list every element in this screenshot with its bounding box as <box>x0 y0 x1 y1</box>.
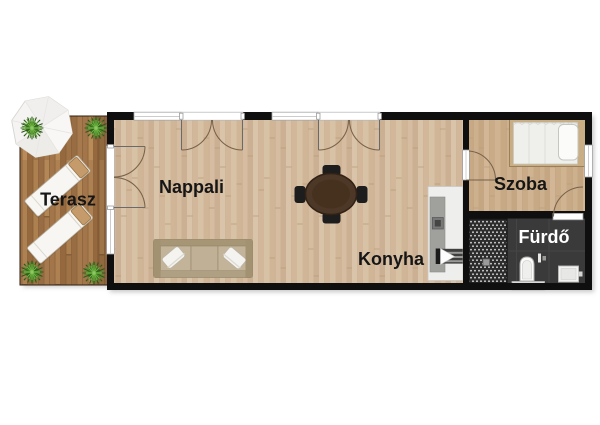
svg-text:Nappali: Nappali <box>159 177 224 197</box>
svg-text:Terasz: Terasz <box>40 190 96 210</box>
svg-text:Konyha: Konyha <box>358 249 425 269</box>
svg-text:Szoba: Szoba <box>494 174 548 194</box>
svg-text:Fürdő: Fürdő <box>519 227 570 247</box>
